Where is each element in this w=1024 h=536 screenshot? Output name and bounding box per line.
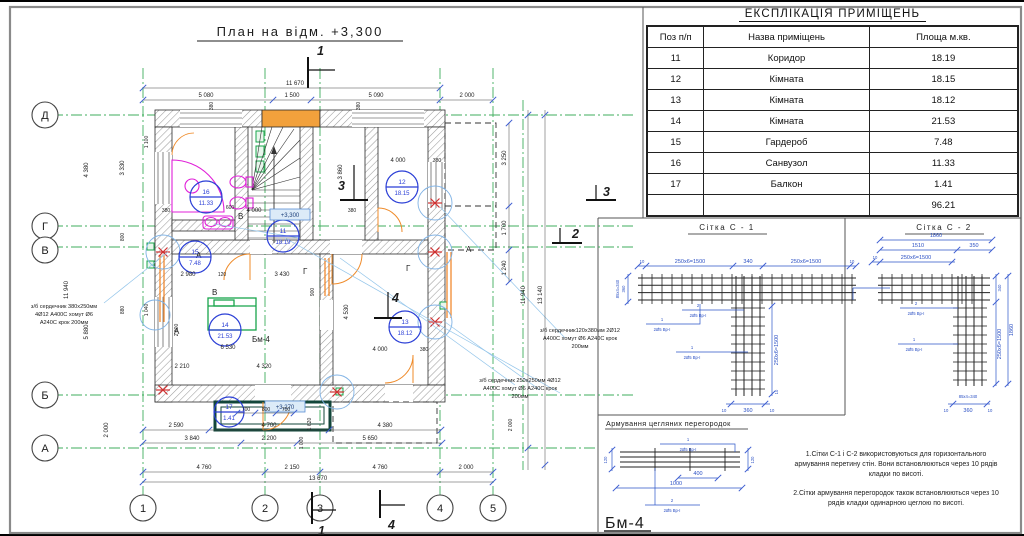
svg-text:18.19: 18.19 bbox=[275, 240, 291, 246]
svg-text:18.12: 18.12 bbox=[397, 331, 413, 337]
room-tag-13: 13 18.12 bbox=[389, 311, 421, 343]
svg-text:3 330: 3 330 bbox=[120, 160, 126, 176]
svg-text:2 000: 2 000 bbox=[104, 422, 110, 438]
svg-text:7.48: 7.48 bbox=[189, 261, 201, 267]
svg-text:6 530: 6 530 bbox=[220, 345, 236, 351]
axis-col-label: 1 bbox=[140, 503, 146, 515]
svg-text:2Ø5 Вр-І: 2Ø5 Вр-І bbox=[664, 508, 681, 513]
cell-area-total: 96.21 bbox=[869, 195, 1018, 217]
axis-bubbles-rows: Д Г В Б А bbox=[32, 102, 58, 461]
table-header-row: Поз п/п Назва приміщень Площа м.кв. bbox=[647, 26, 1018, 48]
svg-text:120: 120 bbox=[750, 456, 755, 464]
svg-text:4: 4 bbox=[387, 518, 395, 532]
svg-text:1860: 1860 bbox=[1009, 324, 1015, 336]
brick-partition-detail: Армування цегляних перегородок 120 120 bbox=[603, 419, 755, 532]
bm4-reference: Бм-4 bbox=[252, 335, 270, 344]
axis-col-label: 4 bbox=[437, 503, 443, 515]
svg-text:4 000: 4 000 bbox=[372, 347, 388, 353]
table-row: 13Кімната18.12 bbox=[647, 90, 1018, 111]
svg-text:380: 380 bbox=[209, 102, 215, 111]
svg-text:12: 12 bbox=[398, 179, 406, 186]
svg-text:1: 1 bbox=[691, 345, 694, 350]
cell-name: Кімната bbox=[704, 111, 869, 132]
svg-text:1860: 1860 bbox=[930, 233, 942, 239]
svg-text:5 650: 5 650 bbox=[362, 436, 378, 442]
letter-a: А bbox=[466, 245, 472, 254]
cell-area: 18.15 bbox=[869, 69, 1018, 90]
wardrobe-outline bbox=[208, 298, 256, 330]
axis-col-label: 2 bbox=[262, 503, 268, 515]
dimension-ticks bbox=[140, 85, 548, 485]
svg-text:340: 340 bbox=[997, 284, 1002, 292]
svg-text:11 940: 11 940 bbox=[64, 280, 70, 299]
s2-title: Сітка С - 2 bbox=[916, 223, 971, 232]
svg-text:2 000: 2 000 bbox=[508, 419, 514, 432]
axis-row-label: В bbox=[41, 245, 48, 257]
svg-text:5 880: 5 880 bbox=[84, 324, 90, 340]
svg-text:1 100: 1 100 bbox=[144, 136, 150, 149]
cell-name: Кімната bbox=[704, 90, 869, 111]
svg-text:2 900: 2 900 bbox=[174, 324, 180, 337]
room-schedule: ЕКСПЛІКАЦІЯ ПРИМІЩЕНЬ Поз п/п Назва прим… bbox=[646, 8, 1019, 217]
svg-text:з/б сердечник120х380мм 2Ø12: з/б сердечник120х380мм 2Ø12 bbox=[540, 328, 620, 334]
room-tag-12: 12 18.15 bbox=[386, 171, 418, 203]
svg-text:1000: 1000 bbox=[670, 481, 682, 487]
svg-text:10: 10 bbox=[944, 408, 949, 413]
svg-text:4Ø12 А400С хомут Ø6: 4Ø12 А400С хомут Ø6 bbox=[35, 312, 93, 318]
svg-text:1: 1 bbox=[687, 437, 690, 442]
svg-text:380: 380 bbox=[420, 347, 429, 353]
svg-text:11 940: 11 940 bbox=[521, 285, 527, 304]
svg-text:350: 350 bbox=[969, 243, 978, 249]
mesh-detail-s2: Сітка С - 2 1 bbox=[853, 223, 1015, 414]
svg-text:200мм: 200мм bbox=[571, 344, 588, 350]
svg-text:360: 360 bbox=[743, 408, 752, 414]
svg-text:4 000: 4 000 bbox=[390, 158, 406, 164]
table-row-total: 96.21 bbox=[647, 195, 1018, 217]
svg-text:3 840: 3 840 bbox=[184, 436, 200, 442]
letter-b: В bbox=[238, 212, 243, 221]
svg-text:380: 380 bbox=[348, 208, 357, 214]
col-header-name: Назва приміщень bbox=[704, 26, 869, 48]
svg-text:4: 4 bbox=[391, 291, 399, 305]
table-row: 16Санвузол11.33 bbox=[647, 153, 1018, 174]
section-mark-1-top: 1 bbox=[308, 44, 335, 88]
plan-title-text: План на відм. +3,300 bbox=[217, 24, 384, 39]
section-mark-2-right: 2 bbox=[552, 227, 582, 243]
svg-text:18.15: 18.15 bbox=[394, 191, 410, 197]
cell-pos: 17 bbox=[647, 174, 704, 195]
staircase bbox=[248, 127, 300, 243]
axis-col-label: 5 bbox=[490, 503, 496, 515]
svg-text:800: 800 bbox=[120, 233, 126, 242]
svg-text:17: 17 bbox=[225, 404, 233, 411]
level-main: +3,300 bbox=[281, 213, 300, 219]
svg-text:1: 1 bbox=[317, 44, 324, 58]
svg-text:13 670: 13 670 bbox=[309, 476, 328, 482]
brick-detail-title: Армування цегляних перегородок bbox=[606, 419, 731, 428]
svg-text:13 140: 13 140 bbox=[538, 285, 544, 304]
cell-name: Гардероб bbox=[704, 132, 869, 153]
cell-area: 18.12 bbox=[869, 90, 1018, 111]
svg-text:1: 1 bbox=[661, 317, 664, 322]
cell-name: Балкон bbox=[704, 174, 869, 195]
svg-text:4 530: 4 530 bbox=[344, 304, 350, 320]
svg-text:з/б сердечник 250х250мм 4Ø12: з/б сердечник 250х250мм 4Ø12 bbox=[479, 378, 560, 384]
svg-text:11: 11 bbox=[280, 228, 287, 235]
svg-text:11 670: 11 670 bbox=[286, 81, 305, 87]
svg-text:700: 700 bbox=[282, 407, 291, 413]
axis-col-label: 3 bbox=[317, 503, 323, 515]
dimension-text-top: 11 670 5 080 1 500 5 090 2 000 380 380 bbox=[198, 81, 475, 110]
table-row: 15Гардероб7.48 bbox=[647, 132, 1018, 153]
cell-area: 7.48 bbox=[869, 132, 1018, 153]
cell-pos: 12 bbox=[647, 69, 704, 90]
svg-text:120: 120 bbox=[603, 456, 608, 464]
cell-name: Санвузол bbox=[704, 153, 869, 174]
svg-text:10: 10 bbox=[850, 259, 855, 264]
svg-text:4 380: 4 380 bbox=[84, 162, 90, 178]
s1-title: Сітка С - 1 bbox=[699, 223, 754, 232]
svg-text:700: 700 bbox=[242, 407, 251, 413]
svg-text:2 150: 2 150 bbox=[284, 465, 300, 471]
svg-text:2 000: 2 000 bbox=[458, 465, 474, 471]
svg-text:2 590: 2 590 bbox=[168, 423, 184, 429]
cell-pos: 11 bbox=[647, 48, 704, 69]
axis-row-label: Б bbox=[41, 390, 48, 402]
general-notes: 1.Сітки С-1 і С-2 використовуються для г… bbox=[788, 450, 1004, 518]
room-tag-16: 16 11.33 bbox=[190, 181, 222, 213]
svg-text:1: 1 bbox=[913, 337, 916, 342]
svg-text:А240С крок 200мм: А240С крок 200мм bbox=[40, 320, 89, 326]
mesh-detail-s1: Сітка С - 1 10 250х6=1500 340 2 bbox=[615, 223, 859, 414]
table-row: 11Коридор18.19 bbox=[647, 48, 1018, 69]
svg-text:250х6=1500: 250х6=1500 bbox=[791, 259, 821, 265]
svg-text:4 000: 4 000 bbox=[246, 208, 262, 214]
svg-text:1 620: 1 620 bbox=[307, 418, 313, 431]
svg-text:800: 800 bbox=[262, 407, 271, 413]
section-mark-3-right: 3 bbox=[586, 185, 616, 200]
svg-text:3 430: 3 430 bbox=[274, 272, 290, 278]
svg-text:А400С хомут Ø6 А240С крок: А400С хомут Ø6 А240С крок bbox=[483, 386, 558, 392]
svg-text:200мм: 200мм bbox=[511, 394, 528, 400]
col-header-pos: Поз п/п bbox=[647, 26, 704, 48]
svg-text:2Ø5 Вр-І: 2Ø5 Вр-І bbox=[684, 355, 701, 360]
svg-text:250х6=1500: 250х6=1500 bbox=[901, 255, 931, 261]
svg-text:880: 880 bbox=[120, 306, 126, 315]
svg-text:85х4=340: 85х4=340 bbox=[959, 394, 978, 399]
s2-ticks bbox=[869, 237, 1011, 407]
svg-text:2Ø5 Вр-І: 2Ø5 Вр-І bbox=[680, 447, 697, 452]
note-1: 1.Сітки С-1 і С-2 використовуються для г… bbox=[788, 450, 1004, 480]
cell-name bbox=[704, 195, 869, 217]
dimension-lines bbox=[143, 88, 545, 482]
svg-text:1 700: 1 700 bbox=[502, 220, 508, 236]
svg-text:1 000: 1 000 bbox=[299, 437, 305, 450]
svg-text:10: 10 bbox=[770, 408, 775, 413]
svg-text:600: 600 bbox=[226, 205, 235, 211]
svg-text:1510: 1510 bbox=[912, 243, 924, 249]
svg-text:13: 13 bbox=[401, 319, 409, 326]
svg-text:3: 3 bbox=[338, 179, 345, 193]
svg-text:2Ø5 Вр-І: 2Ø5 Вр-І bbox=[908, 311, 925, 316]
room-schedule-title-text: ЕКСПЛІКАЦІЯ ПРИМІЩЕНЬ bbox=[739, 8, 927, 22]
s2-bar-labels: 2 2Ø5 Вр-І 1 2Ø5 Вр-І bbox=[898, 301, 958, 352]
svg-text:5 090: 5 090 bbox=[368, 93, 384, 99]
cell-pos: 13 bbox=[647, 90, 704, 111]
letter-b: В bbox=[212, 288, 217, 297]
cell-name: Кімната bbox=[704, 69, 869, 90]
svg-text:2Ø5 Вр-І: 2Ø5 Вр-І bbox=[654, 327, 671, 332]
cell-pos bbox=[647, 195, 704, 217]
svg-text:16: 16 bbox=[202, 189, 210, 196]
annotation-right-1: з/б сердечник120х380мм 2Ø12 А400С хомут … bbox=[540, 328, 620, 350]
axis-row-label: А bbox=[41, 443, 49, 455]
svg-text:14: 14 bbox=[221, 322, 229, 329]
col-header-area: Площа м.кв. bbox=[869, 26, 1018, 48]
svg-text:21.53: 21.53 bbox=[217, 334, 233, 340]
table-row: 12Кімната18.15 bbox=[647, 69, 1018, 90]
svg-text:250х6=1500: 250х6=1500 bbox=[774, 335, 780, 365]
svg-text:3 250: 3 250 bbox=[502, 150, 508, 166]
svg-text:з/б сердечник 380х250мм: з/б сердечник 380х250мм bbox=[31, 304, 97, 310]
annotation-left: з/б сердечник 380х250мм 4Ø12 А400С хомут… bbox=[31, 304, 97, 326]
svg-text:85х4=340: 85х4=340 bbox=[615, 279, 620, 298]
svg-text:2: 2 bbox=[571, 227, 579, 241]
svg-text:2: 2 bbox=[671, 498, 674, 503]
svg-text:2 000: 2 000 bbox=[459, 93, 475, 99]
bm4-detail-title: Бм-4 bbox=[605, 515, 645, 532]
svg-text:4 700: 4 700 bbox=[261, 423, 277, 429]
svg-text:4 760: 4 760 bbox=[372, 465, 388, 471]
svg-text:1 500: 1 500 bbox=[284, 93, 300, 99]
svg-text:10: 10 bbox=[722, 408, 727, 413]
svg-text:4 760: 4 760 bbox=[196, 465, 212, 471]
svg-text:5 080: 5 080 bbox=[198, 93, 214, 99]
annotation-right-2: з/б сердечник 250х250мм 4Ø12 А400С хомут… bbox=[479, 378, 560, 400]
svg-text:4 380: 4 380 bbox=[377, 423, 393, 429]
svg-text:340: 340 bbox=[743, 259, 752, 265]
cell-pos: 15 bbox=[647, 132, 704, 153]
svg-text:10: 10 bbox=[873, 255, 878, 260]
svg-text:380: 380 bbox=[356, 102, 362, 111]
svg-text:А400С хомут Ø6 А240С крок: А400С хомут Ø6 А240С крок bbox=[543, 336, 618, 342]
svg-text:380: 380 bbox=[433, 158, 442, 164]
axis-row-label: Г bbox=[42, 221, 48, 233]
svg-text:2 980: 2 980 bbox=[180, 272, 196, 278]
cell-pos: 16 bbox=[647, 153, 704, 174]
svg-text:3: 3 bbox=[603, 185, 610, 199]
table-row: 17Балкон1.41 bbox=[647, 174, 1018, 195]
svg-text:360: 360 bbox=[963, 408, 972, 414]
svg-text:2Ø5 Вр-І: 2Ø5 Вр-І bbox=[906, 347, 923, 352]
svg-text:4 320: 4 320 bbox=[256, 364, 272, 370]
room-schedule-table: Поз п/п Назва приміщень Площа м.кв. 11Ко… bbox=[646, 25, 1019, 217]
svg-text:380: 380 bbox=[162, 208, 171, 214]
svg-text:15: 15 bbox=[191, 249, 199, 256]
svg-text:2Ø5 Вр-І: 2Ø5 Вр-І bbox=[690, 313, 707, 318]
axis-grid bbox=[33, 68, 636, 522]
section-mark-4-plan: 4 bbox=[374, 291, 402, 318]
svg-text:900: 900 bbox=[310, 288, 316, 297]
svg-text:11.33: 11.33 bbox=[199, 201, 214, 207]
cad-drawing-sheet: План на відм. +3,300 Д Г В Б А 1 bbox=[0, 0, 1024, 536]
letter-g: Г bbox=[406, 264, 411, 273]
cell-pos: 14 bbox=[647, 111, 704, 132]
svg-text:2 200: 2 200 bbox=[261, 436, 277, 442]
svg-text:360: 360 bbox=[621, 285, 626, 293]
cell-area: 18.19 bbox=[869, 48, 1018, 69]
note-2: 2.Сітки армування перегородок також вста… bbox=[788, 489, 1004, 509]
balcony-door-opening bbox=[255, 385, 291, 402]
svg-text:120: 120 bbox=[218, 272, 227, 278]
room-tag-14: 14 21.53 bbox=[209, 314, 241, 346]
axis-bubbles-cols: 1 2 3 4 5 bbox=[130, 495, 506, 521]
svg-text:1.41: 1.41 bbox=[223, 416, 235, 422]
svg-text:10: 10 bbox=[640, 259, 645, 264]
svg-text:10: 10 bbox=[774, 389, 779, 394]
plan-title: План на відм. +3,300 bbox=[197, 24, 403, 41]
letter-g: Г bbox=[303, 267, 308, 276]
cell-area: 11.33 bbox=[869, 153, 1018, 174]
svg-text:2 210: 2 210 bbox=[174, 364, 190, 370]
cell-area: 21.53 bbox=[869, 111, 1018, 132]
svg-text:400: 400 bbox=[693, 471, 702, 477]
table-row: 14Кімната21.53 bbox=[647, 111, 1018, 132]
cell-name: Коридор bbox=[704, 48, 869, 69]
svg-text:10: 10 bbox=[988, 408, 993, 413]
room-schedule-title: ЕКСПЛІКАЦІЯ ПРИМІЩЕНЬ bbox=[646, 8, 1019, 20]
svg-text:250х6=1500: 250х6=1500 bbox=[675, 259, 705, 265]
svg-text:1 040: 1 040 bbox=[144, 304, 150, 317]
axis-row-label: Д bbox=[41, 110, 49, 122]
svg-text:1: 1 bbox=[318, 524, 325, 536]
svg-text:3 860: 3 860 bbox=[338, 164, 344, 180]
cell-area: 1.41 bbox=[869, 174, 1018, 195]
svg-text:250х6=1500: 250х6=1500 bbox=[997, 329, 1003, 359]
section-mark-4-bottom: 4 bbox=[380, 490, 405, 532]
svg-text:1 240: 1 240 bbox=[502, 260, 508, 276]
